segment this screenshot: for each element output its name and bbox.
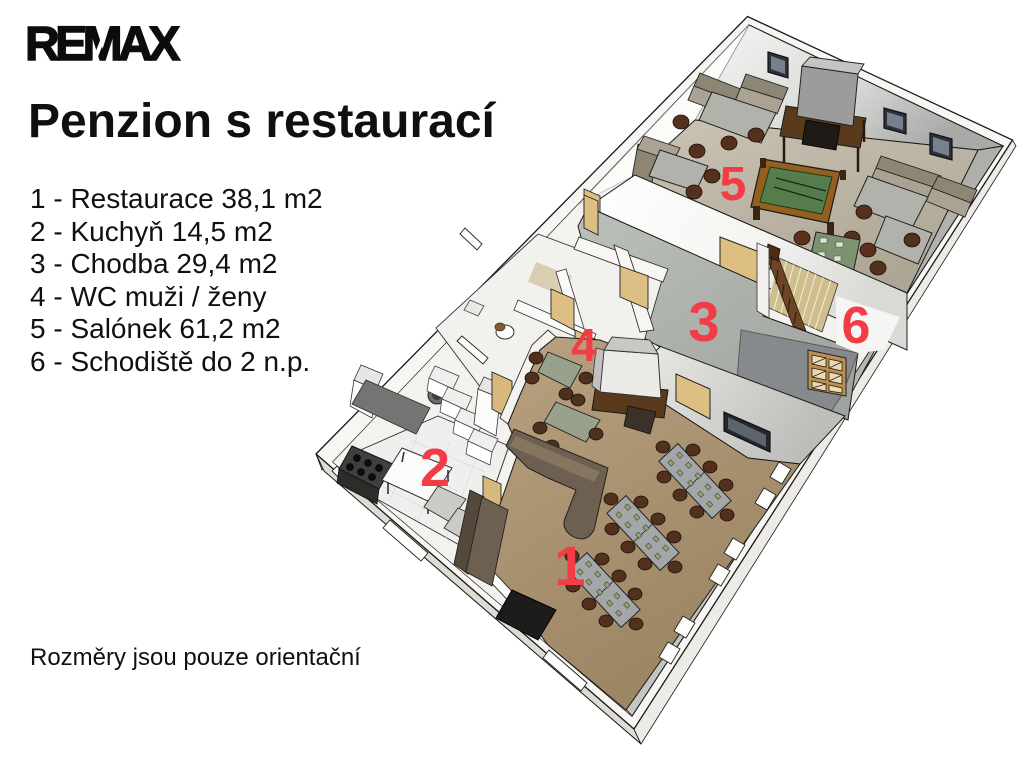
svg-text:5: 5 bbox=[720, 158, 747, 211]
svg-text:4: 4 bbox=[571, 319, 597, 371]
svg-text:1: 1 bbox=[554, 534, 585, 597]
svg-text:3: 3 bbox=[688, 290, 719, 353]
svg-text:2: 2 bbox=[420, 438, 450, 498]
svg-text:6: 6 bbox=[842, 297, 871, 355]
